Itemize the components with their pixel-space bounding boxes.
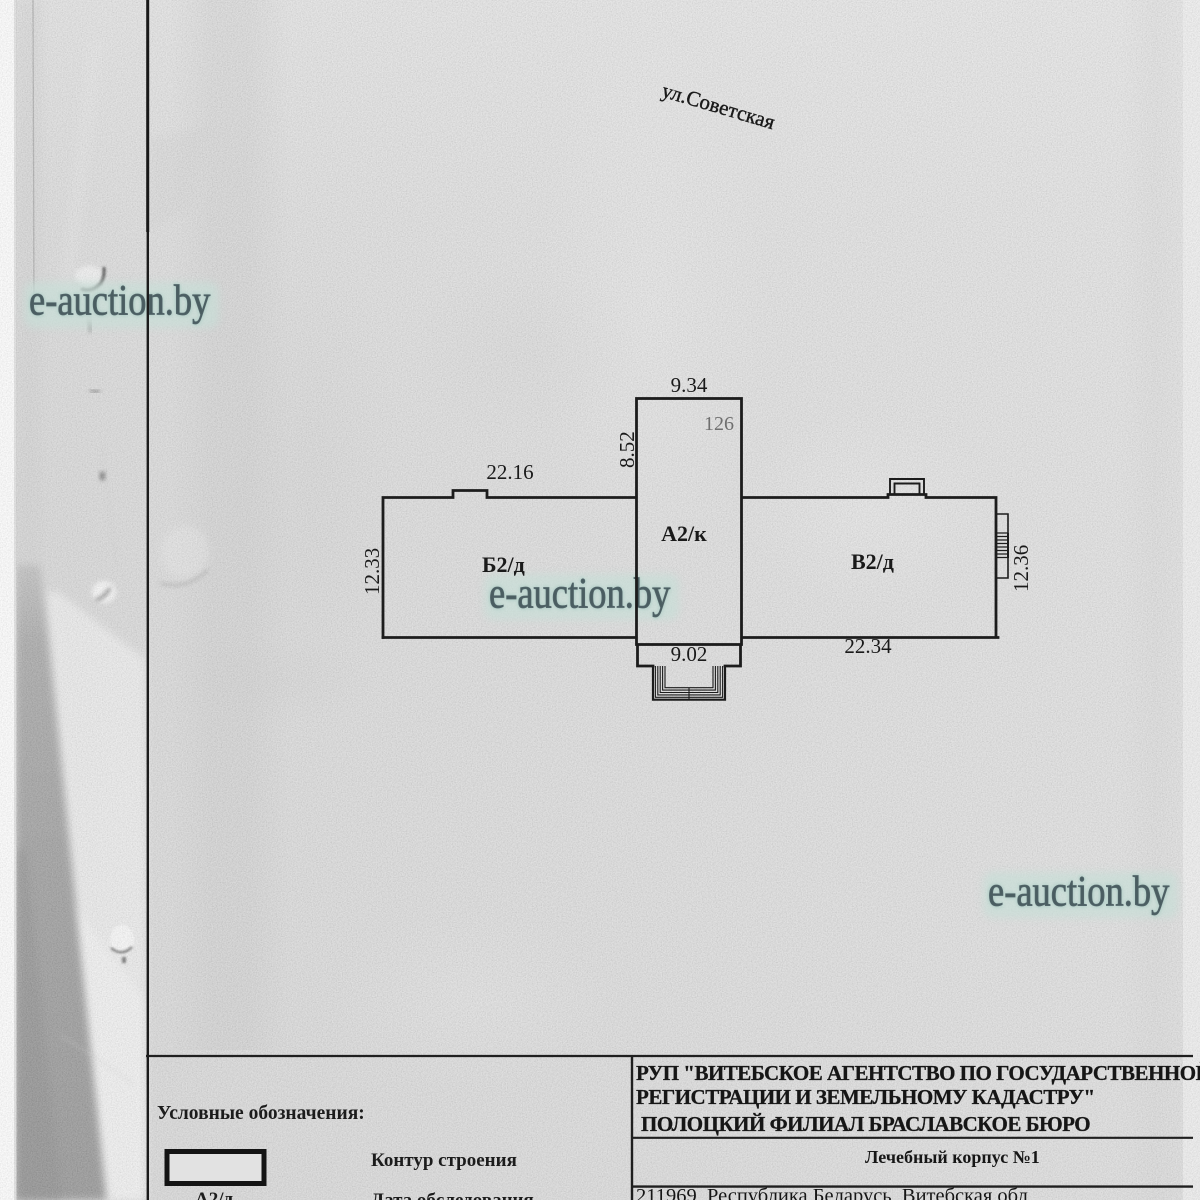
svg-text:Б2/д: Б2/д	[482, 552, 525, 577]
svg-text:А2/к: А2/к	[661, 521, 707, 546]
svg-text:126: 126	[704, 413, 734, 435]
svg-text:12.33: 12.33	[360, 548, 384, 595]
svg-text:22.16: 22.16	[486, 460, 533, 484]
svg-text:9.34: 9.34	[671, 373, 708, 397]
svg-text:8.52: 8.52	[615, 431, 639, 468]
svg-text:22.34: 22.34	[844, 634, 892, 658]
svg-text:12.36: 12.36	[1009, 545, 1033, 592]
svg-text:9.02: 9.02	[671, 642, 708, 666]
svg-text:В2/д: В2/д	[851, 549, 894, 574]
